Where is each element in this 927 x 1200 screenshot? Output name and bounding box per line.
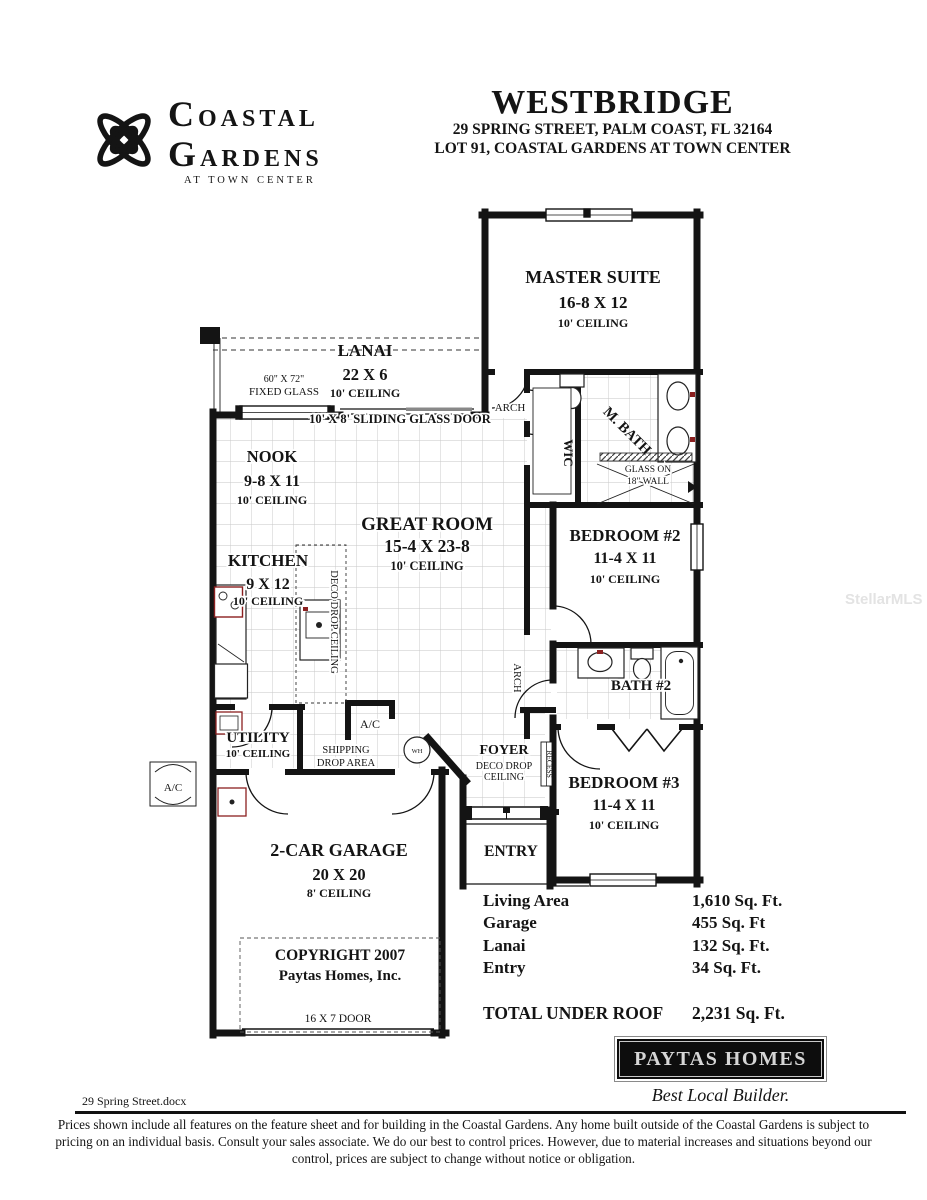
room-label-bedroom2: BEDROOM #2 — [570, 526, 681, 545]
bath2-sink — [588, 653, 612, 672]
fixed-glass-label: FIXED GLASS — [249, 386, 319, 398]
wall-18-label: 18" WALL — [627, 477, 669, 487]
room-ceiling-lanai: 10' CEILING — [330, 386, 400, 400]
room-label-nook: NOOK — [247, 447, 298, 466]
disclaimer-text: Prices shown include all features on the… — [41, 1117, 886, 1167]
builder-name: PAYTAS HOMES — [634, 1048, 807, 1071]
ac-pad-label: A/C — [164, 782, 182, 794]
ac-closet-label: A/C — [360, 717, 380, 731]
arch-label-bedroom-hall: ARCH — [511, 663, 522, 693]
garage-door-label: 16 X 7 DOOR — [305, 1013, 372, 1025]
drop-area-label: DROP AREA — [317, 758, 376, 769]
foyer-note-2: CEILING — [484, 772, 524, 783]
room-dims-great-room: 15-4 X 23-8 — [384, 536, 470, 556]
room-ceiling-great-room: 10' CEILING — [390, 559, 464, 573]
stat-value: 1,610 Sq. Ft. — [692, 891, 782, 911]
shipping-label: SHIPPING — [322, 745, 370, 756]
room-label-utility: UTILITY — [226, 730, 290, 746]
recess-label: RECESS — [545, 750, 554, 778]
stat-label: Living Area — [483, 891, 569, 911]
tub-drain — [679, 659, 683, 663]
floor-plan-page: COASTAL GARDENS AT TOWN CENTER WESTBRIDG… — [0, 0, 927, 1200]
glass-on-label: GLASS ON — [625, 465, 671, 475]
room-dims-nook: 9-8 X 11 — [244, 473, 300, 490]
room-dims-lanai: 22 X 6 — [343, 365, 388, 384]
room-label-garage: 2-CAR GARAGE — [270, 840, 408, 860]
table-row: Garage 455 Sq. Ft — [483, 913, 803, 935]
water-heater-label: WH — [412, 748, 423, 755]
sliding-door-label: 10' X 8' SLIDING GLASS DOOR — [309, 412, 492, 426]
faucet — [690, 437, 695, 442]
stat-value: 132 Sq. Ft. — [692, 936, 769, 956]
burner — [219, 592, 227, 600]
fixed-glass-size-label: 60" X 72" — [264, 374, 304, 385]
total-label: TOTAL UNDER ROOF — [483, 1003, 663, 1024]
room-ceiling-kitchen: 10' CEILING — [233, 594, 303, 608]
room-dims-master-suite: 16-8 X 12 — [559, 293, 628, 312]
master-bath-sink-1 — [667, 382, 689, 410]
bedroom3-closet-bifold — [612, 729, 682, 751]
bath2-toilet — [634, 659, 651, 680]
room-label-kitchen: KITCHEN — [228, 551, 309, 570]
copyright-line-1: COPYRIGHT 2007 — [275, 947, 405, 964]
faucet — [690, 392, 695, 397]
room-ceiling-nook: 10' CEILING — [237, 493, 307, 507]
table-row: Entry 34 Sq. Ft. — [483, 958, 803, 980]
room-label-lanai: LANAI — [338, 341, 393, 360]
room-dims-bedroom3: 11-4 X 11 — [592, 797, 655, 814]
master-bath-toilet-tank — [560, 374, 584, 387]
arch-label-hall: ARCH — [495, 402, 526, 414]
room-label-bath2: BATH #2 — [611, 678, 671, 694]
total-value: 2,231 Sq. Ft. — [692, 1003, 785, 1024]
foyer-note-1: DECO DROP — [476, 761, 533, 772]
stat-label: Garage — [483, 913, 537, 933]
room-label-master-suite: MASTER SUITE — [525, 267, 661, 287]
room-dims-garage: 20 X 20 — [312, 865, 365, 884]
deco-drop-ceiling-label: DECO DROP CEILING — [328, 570, 339, 674]
stat-value: 34 Sq. Ft. — [692, 958, 761, 978]
document-filename: 29 Spring Street.docx — [82, 1094, 186, 1109]
area-stats-table: Living Area 1,610 Sq. Ft. Garage 455 Sq.… — [483, 891, 803, 981]
island-drain — [316, 622, 322, 628]
room-label-entry: ENTRY — [484, 843, 538, 860]
room-dims-bedroom2: 11-4 X 11 — [593, 550, 656, 567]
copyright-line-2: Paytas Homes, Inc. — [279, 968, 402, 984]
room-ceiling-master-suite: 10' CEILING — [558, 316, 628, 330]
faucet — [303, 607, 308, 611]
table-row: Lanai 132 Sq. Ft. — [483, 936, 803, 958]
tub-drain — [230, 800, 235, 805]
builder-tagline: Best Local Builder. — [617, 1085, 824, 1106]
stat-label: Lanai — [483, 936, 526, 956]
kitchen-fridge — [215, 664, 248, 698]
paytas-homes-logo: PAYTAS HOMES — [617, 1039, 824, 1079]
room-ceiling-utility: 10' CEILING — [226, 748, 291, 760]
room-label-great-room: GREAT ROOM — [361, 514, 493, 535]
room-ceiling-garage: 8' CEILING — [307, 886, 371, 900]
room-ceiling-bedroom3: 10' CEILING — [589, 818, 659, 832]
room-ceiling-bedroom2: 10' CEILING — [590, 572, 660, 586]
faucet — [597, 650, 603, 654]
master-bath-sink-2 — [667, 427, 689, 455]
total-under-roof-row: TOTAL UNDER ROOF 2,231 Sq. Ft. — [483, 1003, 813, 1025]
watermark: StellarMLS — [845, 591, 923, 608]
stat-value: 455 Sq. Ft — [692, 913, 765, 933]
lanai-corner-post — [200, 327, 220, 344]
room-label-foyer: FOYER — [480, 743, 530, 758]
room-dims-kitchen: 9 X 12 — [246, 576, 290, 593]
bath2-toilet-tank — [631, 648, 653, 659]
front-door — [464, 806, 548, 820]
washer-inner — [220, 716, 238, 730]
stat-label: Entry — [483, 958, 526, 978]
table-row: Living Area 1,610 Sq. Ft. — [483, 891, 803, 913]
room-label-bedroom3: BEDROOM #3 — [569, 773, 680, 792]
room-label-wic: WIC — [561, 439, 576, 466]
footer-divider — [75, 1111, 906, 1114]
